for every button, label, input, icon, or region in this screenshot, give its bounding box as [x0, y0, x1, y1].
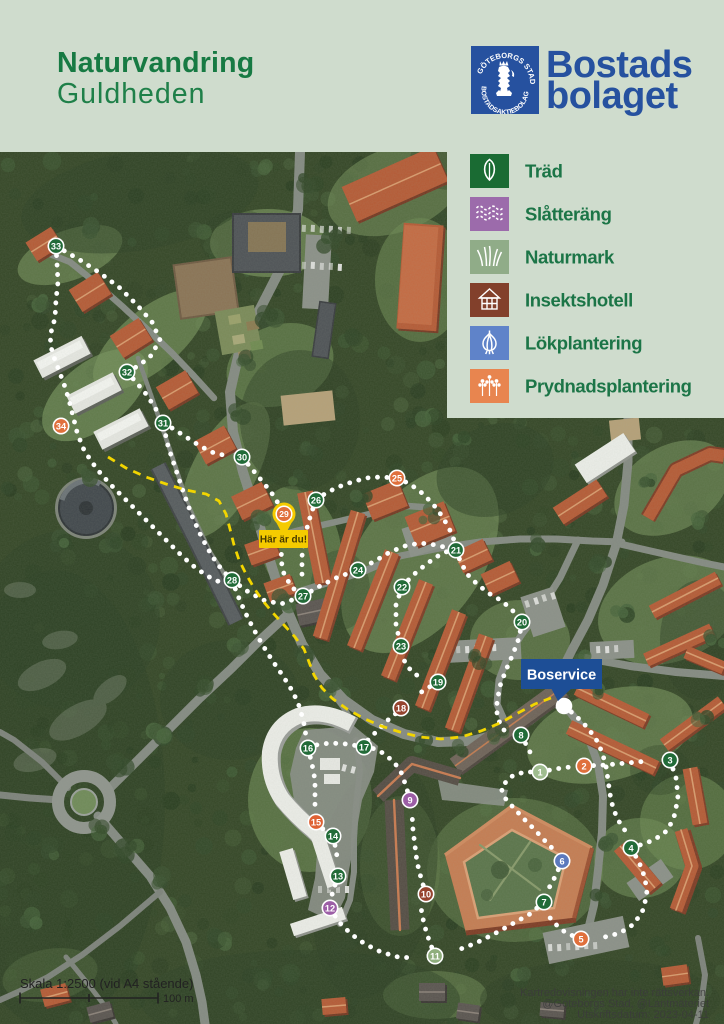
svg-text:Träd: Träd: [525, 161, 563, 182]
svg-text:27: 27: [298, 591, 308, 601]
svg-text:29: 29: [279, 509, 289, 519]
svg-text:11: 11: [430, 951, 440, 961]
svg-text:Lökplantering: Lökplantering: [525, 333, 642, 354]
svg-text:3: 3: [667, 755, 672, 765]
svg-text:Boservice: Boservice: [527, 668, 596, 684]
svg-text:17: 17: [359, 742, 369, 752]
svg-text:12: 12: [325, 903, 335, 913]
svg-text:1: 1: [537, 767, 542, 777]
svg-text:34: 34: [56, 421, 67, 431]
svg-text:16: 16: [303, 743, 313, 753]
svg-text:Insektshotell: Insektshotell: [525, 290, 633, 311]
svg-text:14: 14: [328, 831, 339, 841]
svg-text:Här är du!: Här är du!: [260, 535, 307, 546]
svg-text:23: 23: [396, 641, 406, 651]
svg-text:18: 18: [396, 703, 406, 713]
svg-text:32: 32: [122, 367, 132, 377]
svg-text:7: 7: [541, 897, 546, 907]
svg-text:5: 5: [578, 934, 583, 944]
svg-text:Skala 1:2500 (vid A4 stående): Skala 1:2500 (vid A4 stående): [20, 976, 193, 991]
svg-text:33: 33: [51, 241, 61, 251]
svg-text:8: 8: [518, 730, 523, 740]
svg-text:10: 10: [421, 889, 431, 899]
svg-text:9: 9: [407, 795, 412, 805]
svg-text:2: 2: [581, 761, 586, 771]
svg-text:26: 26: [311, 495, 321, 505]
svg-text:24: 24: [353, 565, 364, 575]
svg-text:4: 4: [628, 843, 634, 853]
svg-text:100 m: 100 m: [163, 993, 194, 1005]
svg-text:Utskriftsdatum: 2023-04-11: Utskriftsdatum: 2023-04-11: [577, 1009, 709, 1021]
svg-text:6: 6: [559, 856, 564, 866]
svg-text:Naturmark: Naturmark: [525, 247, 615, 268]
svg-text:19: 19: [433, 677, 443, 687]
svg-text:22: 22: [397, 582, 407, 592]
svg-text:30: 30: [237, 452, 247, 462]
svg-text:21: 21: [451, 545, 461, 555]
svg-text:25: 25: [392, 473, 402, 483]
svg-text:20: 20: [517, 617, 527, 627]
svg-text:31: 31: [158, 418, 168, 428]
svg-text:28: 28: [227, 575, 237, 585]
svg-text:Prydnadsplantering: Prydnadsplantering: [525, 376, 692, 397]
svg-text:15: 15: [311, 817, 321, 827]
svg-text:Slåtteräng: Slåtteräng: [525, 204, 612, 225]
svg-text:13: 13: [333, 871, 343, 881]
